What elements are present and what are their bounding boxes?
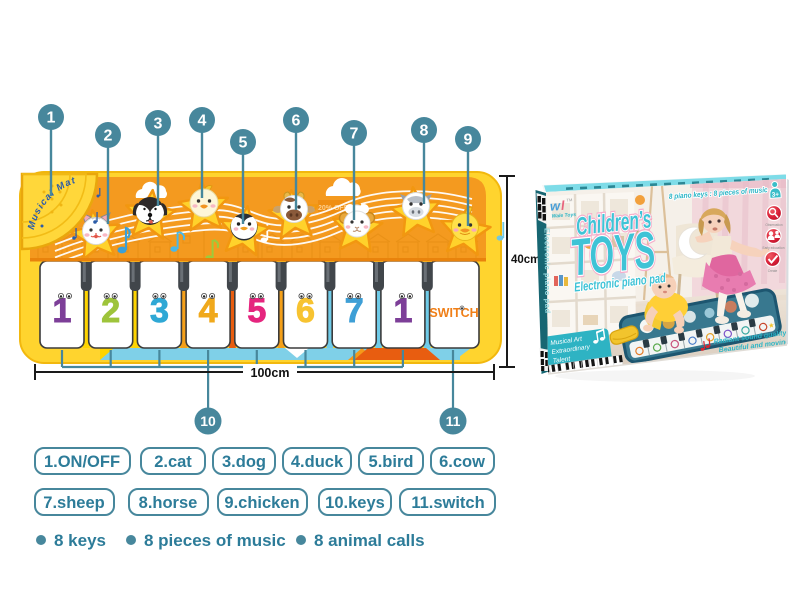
svg-text:7: 7 [350, 126, 359, 143]
svg-text:7.sheep: 7.sheep [43, 494, 104, 512]
svg-text:10.keys: 10.keys [325, 494, 385, 512]
svg-text:2: 2 [101, 292, 120, 330]
svg-text:8.horse: 8.horse [139, 494, 198, 512]
svg-text:6: 6 [296, 292, 315, 330]
svg-text:SWITCH: SWITCH [429, 306, 478, 320]
svg-text:Observation: Observation [765, 223, 782, 227]
svg-text:TM: TM [566, 197, 572, 202]
svg-text:6.cow: 6.cow [439, 453, 485, 471]
svg-text:6: 6 [292, 113, 301, 130]
svg-text:2.cat: 2.cat [154, 453, 192, 471]
svg-text:4: 4 [198, 113, 207, 130]
svg-text:Electronic piano pad: Electronic piano pad [543, 228, 553, 314]
svg-text:9.chicken: 9.chicken [224, 494, 299, 512]
svg-text:11: 11 [446, 413, 461, 429]
svg-text:10: 10 [200, 413, 216, 429]
svg-text:4.duck: 4.duck [291, 453, 344, 471]
svg-text:5: 5 [239, 135, 248, 152]
svg-text:7: 7 [345, 292, 364, 330]
svg-text:1: 1 [47, 110, 56, 127]
svg-text:3: 3 [154, 116, 163, 133]
svg-text:5: 5 [247, 292, 266, 330]
svg-text:2: 2 [104, 128, 113, 145]
svg-text:1.ON/OFF: 1.ON/OFF [44, 453, 120, 471]
svg-text:11.switch: 11.switch [411, 494, 484, 512]
svg-text:4: 4 [199, 292, 218, 330]
svg-text:3+: 3+ [771, 191, 779, 199]
svg-text:3: 3 [150, 292, 169, 330]
svg-text:5.bird: 5.bird [369, 453, 414, 471]
svg-text:3.dog: 3.dog [222, 453, 266, 471]
svg-text:9: 9 [464, 132, 473, 149]
svg-text:8 animal calls: 8 animal calls [314, 531, 425, 550]
svg-text:★: ★ [768, 321, 775, 330]
svg-text:8 keys: 8 keys [54, 531, 106, 550]
svg-text:40cm: 40cm [511, 254, 540, 266]
svg-text:8: 8 [420, 123, 429, 140]
svg-text:8 pieces of music: 8 pieces of music [144, 531, 286, 550]
svg-text:Early education: Early education [763, 246, 785, 250]
svg-text:Create: Create [768, 269, 778, 273]
svg-text:100cm: 100cm [251, 366, 290, 380]
